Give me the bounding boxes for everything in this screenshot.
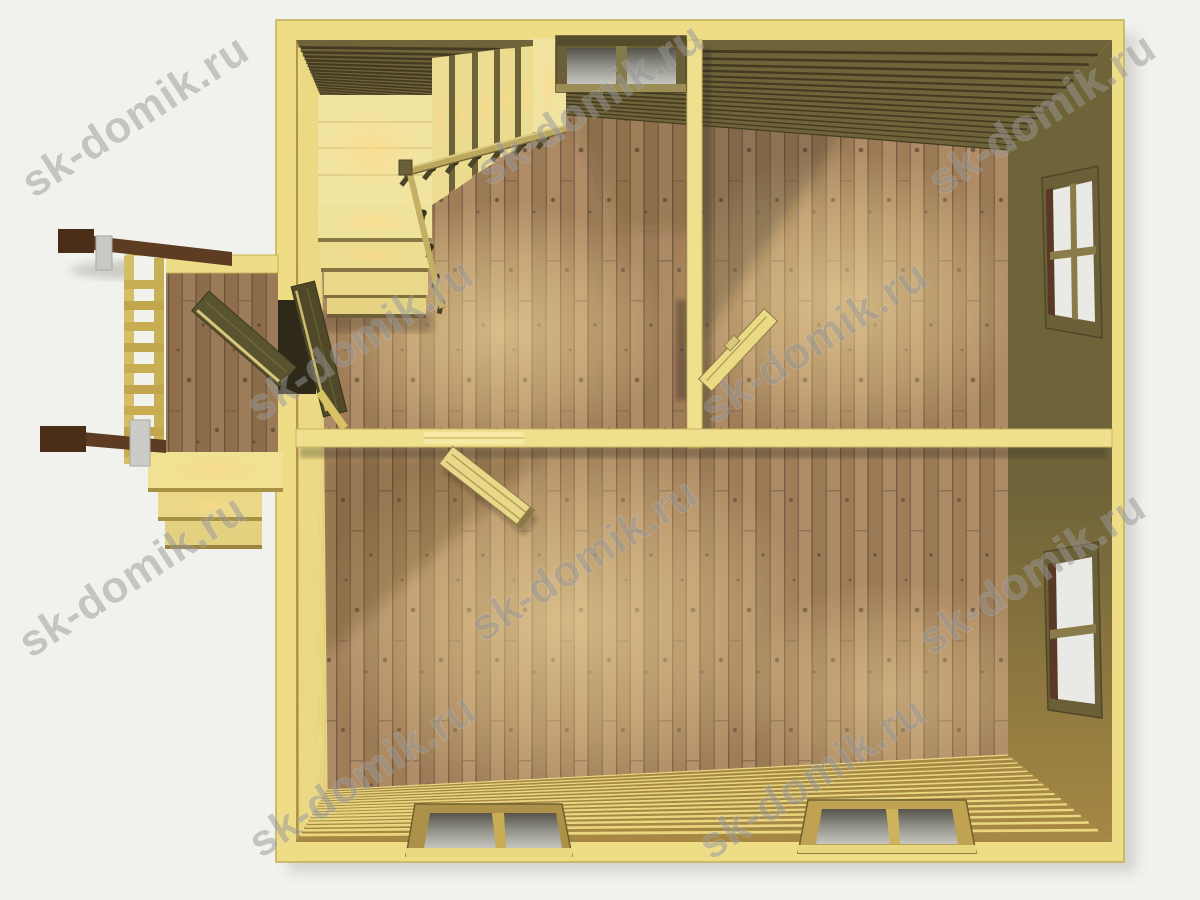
- bottom-wall-left-window: [406, 804, 572, 857]
- window-glass: [816, 809, 890, 844]
- window-glass: [424, 813, 496, 848]
- bedroom-doorway-shadow: [676, 300, 687, 400]
- horizontal-partition-shadow: [300, 447, 1106, 458]
- floorplan-render: sk-domik.rusk-domik.rusk-domik.rusk-domi…: [0, 0, 1200, 900]
- porch-post: [130, 420, 150, 466]
- bottom-wall-right-window: [798, 800, 976, 853]
- right-wall-upper-window: [1042, 166, 1102, 338]
- horizontal-partition: [296, 429, 1112, 447]
- render-stage: sk-domik.rusk-domik.rusk-domik.rusk-domi…: [0, 0, 1200, 900]
- window-glass: [898, 809, 958, 844]
- window-glass: [504, 813, 562, 848]
- newel-post: [399, 160, 412, 175]
- porch-post: [96, 236, 112, 270]
